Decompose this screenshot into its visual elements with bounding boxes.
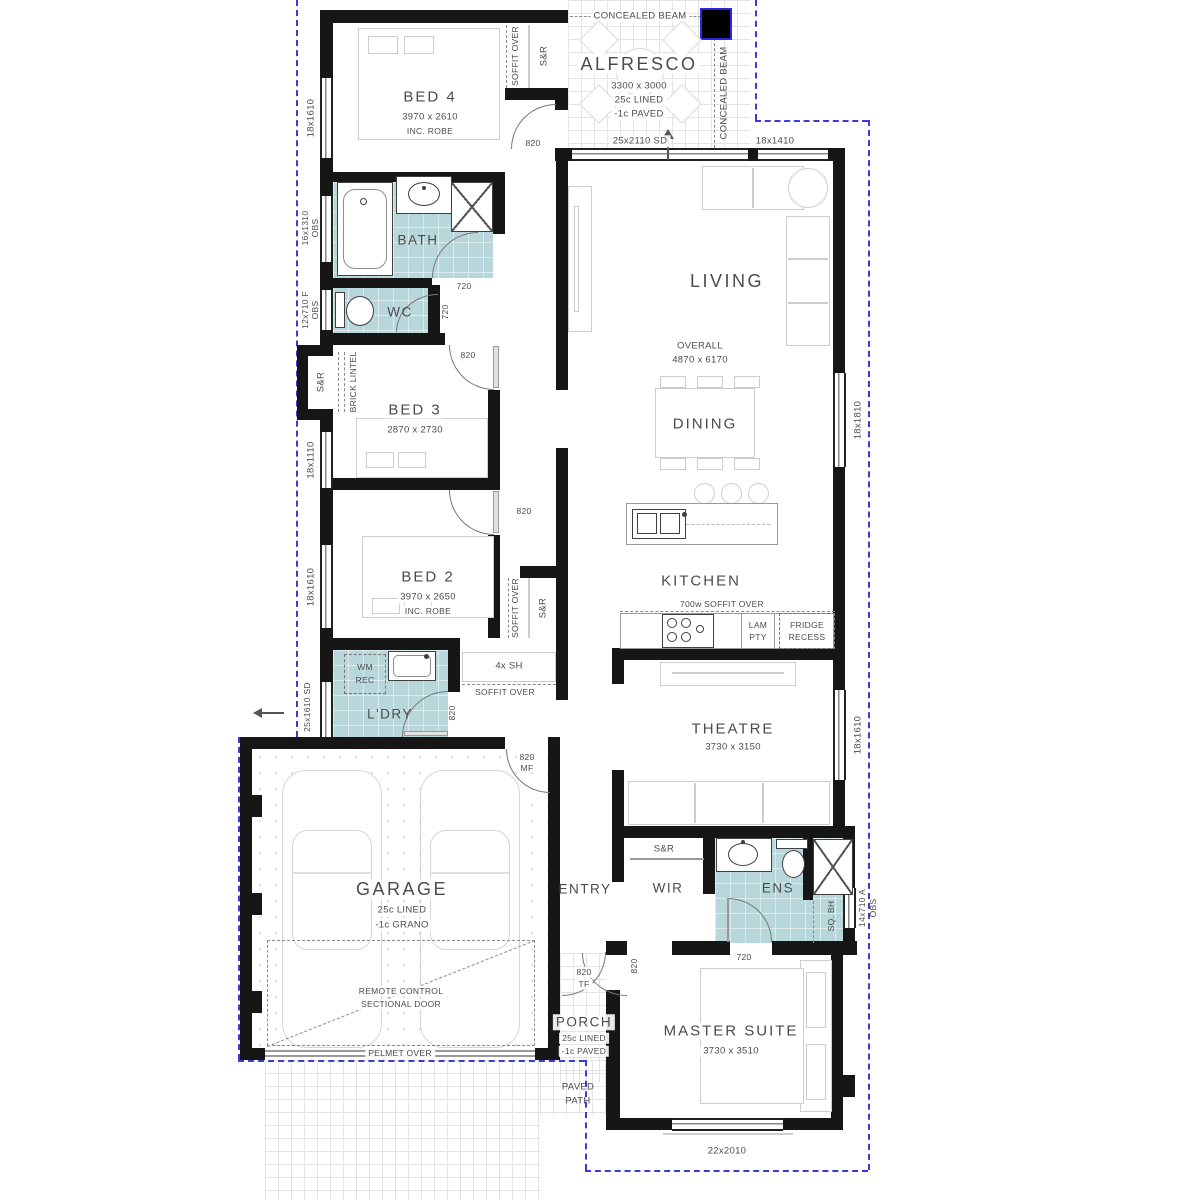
door-label-820: 820: [525, 139, 540, 148]
soffit-700-label: 700w SOFFIT OVER: [680, 600, 764, 609]
door-label-720: 720: [736, 953, 751, 962]
wall-segment: [772, 941, 857, 955]
wall-segment: [833, 161, 845, 373]
room-label-theatre: THEATRE: [689, 721, 778, 738]
burner: [681, 632, 691, 642]
wall-segment: [555, 148, 572, 161]
dining-chair: [660, 458, 686, 470]
bed2-note: INC. ROBE: [402, 606, 454, 617]
sofa-cushion-line: [752, 168, 754, 208]
burner: [667, 618, 677, 628]
boundary-step-down: [585, 1060, 587, 1170]
wall-segment: [783, 1118, 843, 1130]
fridge-label: FRIDGE: [790, 621, 824, 630]
soffit-line: [462, 684, 556, 685]
wc-toilet: [346, 296, 374, 326]
sqbh-dash: [813, 901, 814, 943]
pantry-label: LAM: [749, 621, 767, 630]
pendant-light: [748, 483, 769, 504]
wall-kitchen-bench: [620, 648, 845, 660]
wall-segment: [703, 838, 715, 894]
window-label: 18x1810: [853, 401, 863, 440]
wall-segment: [333, 478, 500, 490]
wall-segment: [606, 1118, 672, 1130]
rangehood-line: [672, 672, 784, 674]
window-bed4: [320, 78, 333, 158]
room-label-entry: ENTRY: [558, 882, 611, 896]
ens-basin: [728, 843, 758, 866]
wall-garage-left: [240, 737, 252, 1060]
ens-shower: [813, 839, 853, 895]
wall-segment: [535, 1048, 560, 1060]
wall-segment: [488, 390, 500, 478]
bed3-pillow: [366, 452, 394, 468]
fridge-label: RECESS: [789, 633, 826, 642]
window-label: OBS: [311, 301, 320, 320]
wall-segment: [448, 650, 460, 692]
car-line: [430, 872, 510, 874]
window-right-living: [833, 373, 846, 467]
burner: [681, 618, 691, 628]
wall-segment: [320, 158, 333, 196]
bed2-dims: 3970 x 2650: [397, 591, 459, 603]
slide-arrow-laundry: [262, 712, 284, 714]
room-label-wir: WIR: [653, 881, 684, 895]
remote-label: SECTIONAL DOOR: [358, 999, 444, 1010]
window-label: 16x1310: [301, 211, 310, 246]
window-label: 25x1610 SD: [303, 682, 312, 732]
bed4-pillow: [404, 36, 434, 54]
dining-chair: [660, 376, 686, 388]
room-label-master: MASTER SUITE: [661, 1023, 802, 1040]
trough-tap: [424, 654, 429, 659]
door-label-720: 720: [456, 282, 471, 291]
bed3-dims: 2870 x 2730: [384, 424, 446, 436]
wall-segment: [831, 950, 843, 1130]
wall-segment: [828, 148, 845, 161]
wm-rec-label: WM: [357, 663, 373, 672]
window-label: 22x2010: [708, 1146, 747, 1156]
sqbh-label: SQ. BH: [827, 901, 836, 932]
door-label-820: 820: [460, 351, 475, 360]
master-pillow: [806, 972, 826, 1028]
sr-label: S&R: [316, 372, 326, 392]
garage-pier: [252, 893, 262, 915]
bed4-note: INC. ROBE: [404, 126, 456, 137]
master-dims: 3730 x 3510: [700, 1045, 762, 1057]
remote-label: REMOTE CONTROL: [356, 986, 446, 997]
window-bed2: [320, 545, 333, 628]
door-label-820: 820: [448, 705, 457, 720]
window-label: 18x1610: [306, 99, 316, 138]
wall-segment: [833, 780, 845, 826]
burner: [696, 625, 704, 633]
door-label-720: 720: [441, 304, 450, 319]
boundary-bottom-2: [585, 1170, 868, 1172]
door-label-820: 820: [630, 958, 639, 973]
soffit-line-700: [620, 611, 835, 612]
dining-chair: [697, 458, 723, 470]
garage-note: -1c GRANO: [372, 919, 431, 931]
room-label-wc: WC: [387, 305, 413, 319]
dining-chair: [734, 458, 760, 470]
porch-note: -1c PAVED: [559, 1046, 609, 1057]
wall-segment: [606, 990, 620, 1130]
wall-segment: [320, 278, 432, 288]
room-label-porch: PORCH: [553, 1014, 615, 1030]
boundary-top-right: [755, 0, 757, 120]
bed4-pillow: [368, 36, 398, 54]
room-label-ens: ENS: [762, 881, 794, 895]
vanity-tap: [422, 186, 426, 190]
ens-toilet: [782, 850, 805, 878]
shelf-edge: [528, 578, 530, 638]
overall-label: OVERALL: [677, 341, 723, 351]
wall-segment: [240, 1048, 265, 1060]
garage-pier: [252, 795, 262, 817]
boundary-step-top: [755, 120, 868, 122]
door-label-820tf: 820: [573, 967, 594, 978]
room-label-garage: GARAGE: [353, 879, 451, 899]
slide-arrow-laundry-head: [253, 708, 262, 718]
porch-note: 25c LINED: [559, 1033, 609, 1044]
window-label: OBS: [869, 899, 878, 918]
sofa-right: [786, 216, 830, 346]
soffit-over-label: SOFFIT OVER: [511, 578, 520, 638]
brick-lintel-line: [344, 352, 345, 412]
room-label-kitchen: KITCHEN: [661, 574, 741, 589]
sofa-cushion-line: [694, 783, 696, 823]
shelves-label: 4x SH: [495, 661, 522, 671]
theatre-dims: 3730 x 3150: [702, 741, 764, 753]
wall-notch: [843, 1075, 855, 1097]
door-label-820mf: MF: [521, 764, 534, 773]
alfresco-dims: 3300 x 3000: [608, 80, 670, 92]
wall-segment: [333, 638, 460, 650]
room-label-ldry: L'DRY: [367, 707, 413, 721]
window-label: OBS: [311, 219, 320, 238]
window-top-living: [758, 148, 828, 161]
wall-segment: [555, 88, 568, 110]
dining-chair: [734, 376, 760, 388]
room-label-bed2: BED 2: [398, 569, 457, 586]
window-label: 18x1610: [306, 568, 316, 607]
wir-shelf: [630, 858, 704, 860]
tv: [574, 206, 579, 312]
sink-tap: [682, 512, 687, 517]
door-swing-bed2: [449, 490, 494, 535]
alfresco-note: -1c PAVED: [611, 108, 666, 120]
window-bed3: [320, 432, 333, 488]
brick-lintel-label: BRICK LINTEL: [349, 352, 358, 413]
room-label-dining: DINING: [670, 416, 741, 433]
side-table-round: [788, 168, 828, 208]
wall-segment: [520, 566, 568, 578]
door-leaf-bed2: [493, 491, 499, 533]
niche-wall: [297, 409, 333, 420]
wall-garage-top: [240, 737, 505, 749]
room-label-bed4: BED 4: [400, 89, 459, 106]
wall-segment: [320, 420, 333, 432]
bed2-pillow: [372, 598, 400, 614]
window-right-theatre: [833, 690, 846, 780]
window-label: 18x1610: [853, 716, 863, 755]
window-sill: [663, 1133, 793, 1135]
bed3-pillow: [398, 452, 426, 468]
bath-shower: [451, 182, 493, 232]
ens-tap: [741, 840, 745, 844]
sink-bowl: [660, 513, 680, 534]
window-laundry-sd: [320, 682, 333, 737]
shelf-edge: [528, 25, 530, 88]
sofa-cushion-line: [788, 258, 828, 260]
concealed-beam-line-vertical: [714, 38, 715, 148]
window-sliding-door-alfresco: [572, 148, 748, 161]
door-leaf-bed3: [493, 346, 499, 388]
wall-segment: [320, 488, 333, 545]
window-label: 14x710 A: [858, 889, 867, 927]
room-label-bath: BATH: [397, 233, 438, 247]
wall-segment: [612, 838, 624, 882]
bed4-dims: 3970 x 2610: [399, 111, 461, 123]
soffit-line: [506, 25, 507, 88]
car-line: [292, 872, 372, 874]
soffit-over-label: SOFFIT OVER: [511, 26, 520, 86]
wall-segment: [320, 333, 445, 345]
concealed-beam-label: CONCEALED BEAM: [591, 10, 690, 22]
pantry-label: PTY: [749, 633, 766, 642]
dining-chair: [697, 376, 723, 388]
ens-cistern: [776, 839, 808, 849]
wall-segment: [748, 148, 758, 161]
rangehood: [660, 662, 796, 686]
window-label: 25x2110 SD: [610, 135, 671, 147]
wall-segment: [672, 941, 730, 955]
alfresco-note: 25c LINED: [612, 94, 667, 106]
paved-path-area: [265, 1060, 540, 1200]
room-label-alfresco: ALFRESCO: [577, 54, 700, 74]
boundary-right: [868, 120, 870, 1170]
door-leaf-laundry: [404, 731, 448, 736]
wall-segment: [556, 161, 568, 390]
door-label-820tf: TF: [576, 979, 593, 990]
wall-segment: [548, 737, 560, 749]
wc-cistern: [335, 292, 345, 328]
window-bath: [320, 196, 333, 262]
wall-wir-ens-top: [612, 826, 855, 838]
garage-pier: [252, 991, 262, 1013]
floor-plan: CONCEALED BEAM CONCEALED BEAM ALFRESCO 3…: [0, 0, 1200, 1200]
sink-bowl: [637, 513, 657, 534]
bath-drain: [360, 198, 367, 205]
room-label-living: LIVING: [690, 272, 764, 290]
window-wc: [320, 290, 333, 330]
soffit-over-label: SOFFIT OVER: [475, 688, 535, 697]
room-label-bed3: BED 3: [385, 402, 444, 419]
pendant-light: [694, 483, 715, 504]
window-label: 12x710 F: [301, 291, 310, 329]
wall-segment: [612, 648, 624, 684]
door-leaf-ensuite: [727, 898, 729, 942]
sofa-cushion-line: [788, 302, 828, 304]
door-label-820: 820: [516, 507, 531, 516]
sr-label: S&R: [654, 844, 674, 854]
garage-note: 25c LINED: [375, 904, 430, 916]
window-master-bottom: [672, 1118, 783, 1131]
paved-path-label: PATH: [565, 1096, 590, 1106]
wm-rec-label: REC: [356, 676, 375, 685]
sr-label: S&R: [538, 598, 548, 618]
master-pillow: [806, 1044, 826, 1100]
overall-dims: 4870 x 6170: [672, 355, 728, 365]
wall-top-bed4: [320, 10, 568, 23]
concealed-beam-label-vertical: CONCEALED BEAM: [719, 47, 729, 140]
sofa-cushion-line: [762, 783, 764, 823]
paved-path-label: PAVED: [562, 1082, 594, 1092]
sr-label: S&R: [539, 46, 549, 66]
tv-unit: [568, 186, 592, 332]
boundary-bottom-1: [238, 1060, 585, 1062]
pendant-light: [721, 483, 742, 504]
window-label: 18x1110: [306, 441, 316, 478]
burner: [667, 632, 677, 642]
door-label-820mf: 820: [519, 753, 534, 762]
brick-lintel-line: [338, 352, 339, 412]
wall-segment: [320, 628, 333, 682]
theatre-sofa: [628, 781, 830, 825]
window-label: 18x1410: [753, 135, 798, 147]
pelmet-label: PELMET OVER: [365, 1048, 435, 1059]
alfresco-column: [700, 8, 732, 40]
